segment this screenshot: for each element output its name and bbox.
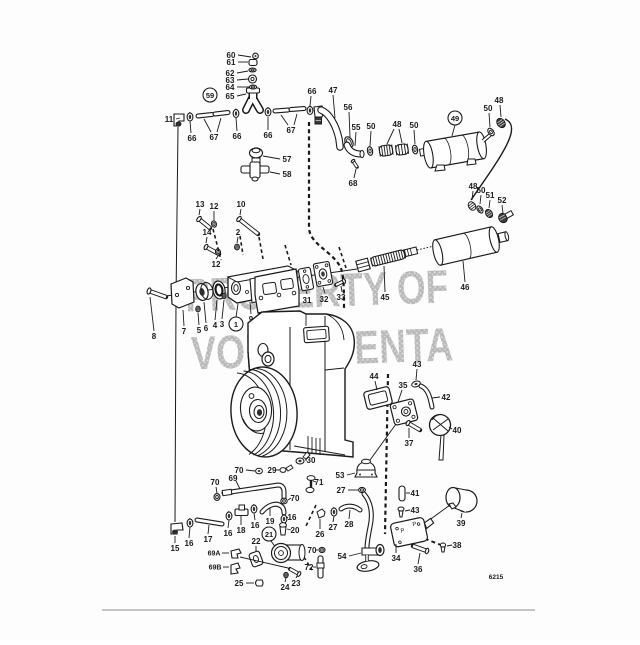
svg-text:27: 27: [337, 486, 346, 495]
svg-text:16: 16: [185, 539, 194, 548]
svg-text:53: 53: [336, 471, 345, 480]
svg-text:14: 14: [203, 228, 212, 237]
svg-text:18: 18: [237, 526, 246, 535]
svg-text:72: 72: [305, 563, 314, 572]
svg-text:70: 70: [211, 478, 220, 487]
svg-text:16: 16: [224, 529, 233, 538]
svg-text:48: 48: [393, 120, 402, 129]
svg-text:10: 10: [237, 200, 246, 209]
svg-text:4: 4: [213, 321, 218, 330]
svg-text:46: 46: [461, 283, 470, 292]
svg-text:50: 50: [367, 122, 376, 131]
svg-text:43: 43: [411, 506, 420, 515]
svg-text:41: 41: [411, 489, 420, 498]
svg-text:66: 66: [308, 87, 317, 96]
svg-text:66: 66: [233, 132, 242, 141]
svg-text:48: 48: [495, 96, 504, 105]
svg-text:51: 51: [486, 191, 495, 200]
svg-text:12: 12: [210, 202, 219, 211]
svg-text:71: 71: [315, 478, 324, 487]
svg-text:40: 40: [453, 426, 462, 435]
svg-text:34: 34: [392, 554, 401, 563]
svg-text:67: 67: [210, 133, 219, 142]
svg-text:70: 70: [291, 494, 300, 503]
svg-text:31: 31: [303, 296, 312, 305]
svg-text:1: 1: [234, 320, 238, 329]
svg-text:54: 54: [338, 552, 347, 561]
svg-text:22: 22: [252, 537, 261, 546]
svg-text:67: 67: [287, 126, 296, 135]
svg-text:30: 30: [307, 456, 316, 465]
svg-text:36: 36: [414, 565, 423, 574]
svg-text:42: 42: [442, 393, 451, 402]
svg-text:37: 37: [405, 439, 414, 448]
svg-text:12: 12: [212, 260, 221, 269]
svg-text:39: 39: [457, 519, 466, 528]
svg-text:6: 6: [204, 324, 209, 333]
svg-text:17: 17: [204, 535, 213, 544]
svg-text:66: 66: [188, 134, 197, 143]
svg-text:57: 57: [283, 155, 292, 164]
svg-text:47: 47: [329, 86, 338, 95]
svg-text:68: 68: [349, 179, 358, 188]
svg-text:20: 20: [291, 526, 300, 535]
svg-text:66: 66: [264, 131, 273, 140]
svg-text:3: 3: [220, 320, 225, 329]
svg-text:25: 25: [235, 579, 244, 588]
svg-text:38: 38: [453, 541, 462, 550]
svg-text:19: 19: [266, 517, 275, 526]
svg-text:23: 23: [292, 579, 301, 588]
svg-text:49: 49: [451, 114, 459, 123]
svg-text:8: 8: [152, 332, 157, 341]
svg-text:59: 59: [206, 91, 214, 100]
svg-text:32: 32: [320, 295, 329, 304]
svg-text:26: 26: [316, 530, 325, 539]
svg-text:33: 33: [337, 293, 346, 302]
svg-text:5: 5: [197, 326, 202, 335]
svg-text:70: 70: [308, 546, 317, 555]
svg-text:21: 21: [265, 530, 273, 539]
svg-text:69A: 69A: [208, 551, 221, 558]
svg-text:43: 43: [413, 360, 422, 369]
svg-text:44: 44: [370, 372, 379, 381]
svg-text:16: 16: [288, 513, 297, 522]
svg-text:56: 56: [344, 103, 353, 112]
svg-text:61: 61: [227, 58, 236, 67]
svg-text:50: 50: [484, 104, 493, 113]
svg-text:2: 2: [236, 228, 241, 237]
svg-text:52: 52: [498, 196, 507, 205]
svg-text:27: 27: [329, 523, 338, 532]
svg-text:55: 55: [352, 123, 361, 132]
svg-text:35: 35: [399, 381, 408, 390]
svg-text:50: 50: [410, 121, 419, 130]
svg-text:15: 15: [171, 544, 180, 553]
svg-text:6215: 6215: [489, 574, 504, 581]
svg-text:28: 28: [345, 520, 354, 529]
svg-text:45: 45: [381, 293, 390, 302]
svg-text:64: 64: [226, 83, 235, 92]
svg-text:7: 7: [182, 327, 187, 336]
svg-text:24: 24: [281, 583, 290, 592]
svg-text:65: 65: [226, 92, 235, 101]
svg-text:16: 16: [251, 521, 260, 530]
svg-text:29: 29: [268, 466, 277, 475]
svg-text:13: 13: [196, 200, 205, 209]
svg-text:58: 58: [283, 170, 292, 179]
svg-text:11: 11: [165, 115, 174, 124]
svg-text:69B: 69B: [209, 565, 222, 572]
